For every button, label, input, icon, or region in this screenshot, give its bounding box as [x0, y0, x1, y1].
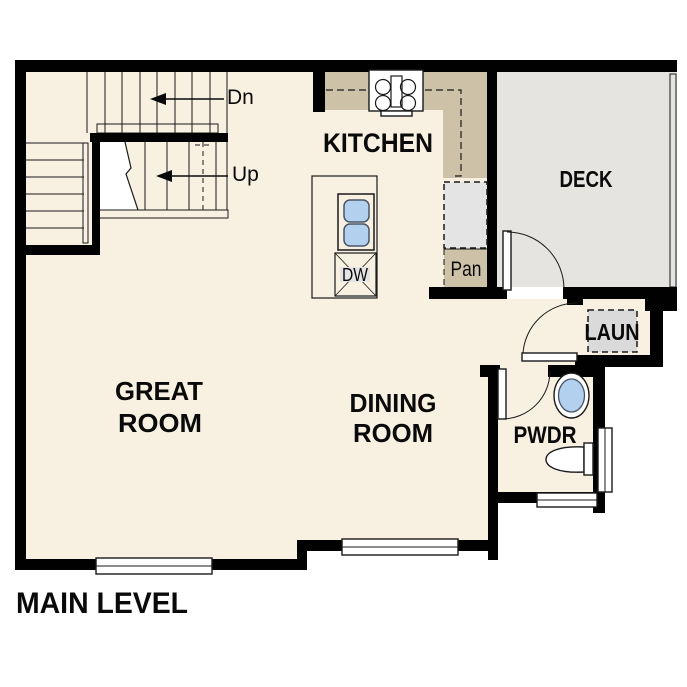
refrigerator	[444, 182, 487, 248]
wall-segment	[480, 365, 500, 377]
great-room-label-line1: GREAT	[115, 376, 203, 406]
sink-basin	[344, 224, 369, 246]
sink-basin	[344, 200, 369, 222]
wall-segment	[15, 245, 93, 255]
wall-segment	[313, 60, 325, 112]
great-room-floor-strip	[26, 540, 307, 559]
stairs-up-label: Up	[232, 163, 259, 186]
toilet-tank	[584, 443, 593, 475]
wall-segment	[575, 355, 663, 367]
dining-room-label-line1: DINING	[350, 388, 437, 418]
powder-label: PWDR	[514, 422, 577, 449]
wall-segment	[488, 368, 498, 560]
wall-segment	[429, 287, 507, 299]
stove-handle	[381, 111, 412, 116]
great-room-label-line2: ROOM	[118, 408, 202, 438]
plan-title: MAIN LEVEL	[16, 587, 188, 620]
floor-plan-drawing: KITCHEN DECK GREAT ROOM DINING ROOM LAUN…	[0, 0, 687, 687]
kitchen-label: KITCHEN	[323, 128, 433, 158]
stair-wall-bar	[90, 133, 228, 142]
counter-right-run	[443, 110, 487, 178]
dishwasher-label: DW	[342, 265, 368, 285]
deck-door-leaf	[503, 231, 511, 290]
dining-room-label-line2: ROOM	[353, 418, 433, 448]
wall-segment	[92, 133, 100, 255]
laundry-label: LAUN	[585, 319, 640, 345]
wall-segment	[645, 287, 677, 311]
wall-segment	[15, 60, 677, 72]
stairs-down-label: Dn	[227, 86, 254, 109]
pantry-label: Pan	[451, 258, 482, 281]
wall-segment	[567, 288, 583, 305]
laundry-door-leaf	[522, 353, 577, 361]
floor-plan: KITCHEN DECK GREAT ROOM DINING ROOM LAUN…	[0, 0, 687, 687]
deck-label: DECK	[560, 166, 613, 192]
wall-segment	[487, 60, 497, 299]
wall-segment	[15, 60, 26, 570]
powder-sink-basin	[559, 379, 585, 412]
powder-door-leaf	[498, 369, 506, 419]
